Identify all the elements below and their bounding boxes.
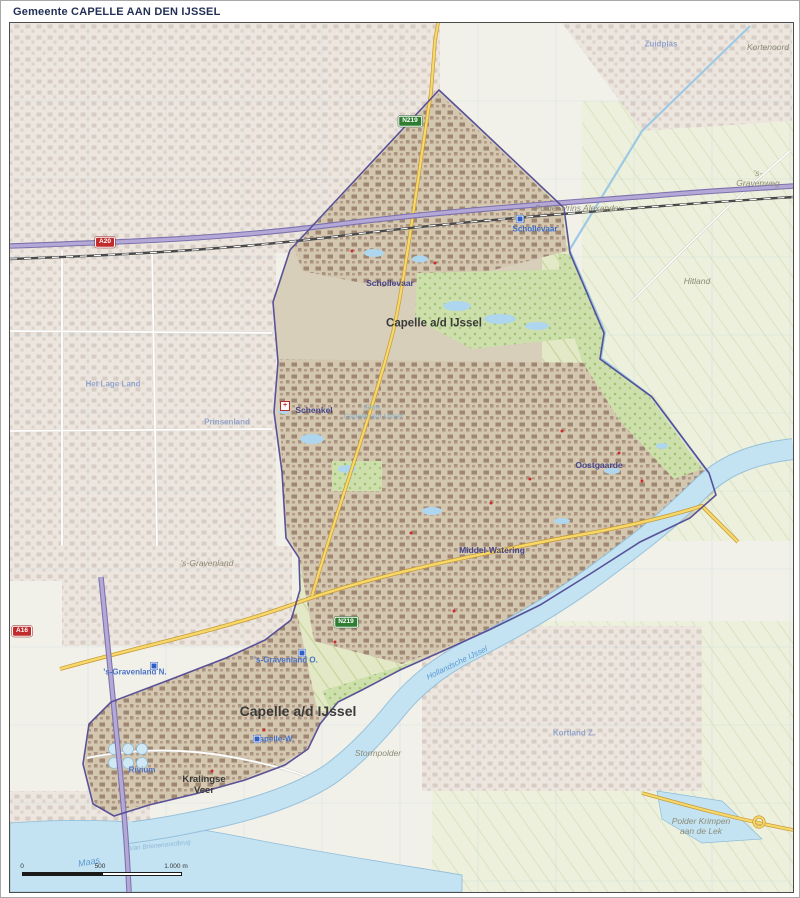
hospital-icon: + <box>280 401 290 411</box>
map-canvas <box>10 23 793 892</box>
scale-label-zero: 0 <box>20 863 24 870</box>
map-title: Gemeente CAPELLE AAN DEN IJSSEL <box>13 6 221 18</box>
scale-bar-white-segment <box>102 872 182 876</box>
scale-label-end: 1.000 m <box>164 863 188 870</box>
road-shield-n219-north: N219 <box>398 116 422 127</box>
station-icon-s-gravenland-n <box>151 663 158 670</box>
road-shield-a16: A16 <box>12 626 32 637</box>
station-icon-schollevaar <box>517 216 524 223</box>
road-shield-n219-south: N219 <box>334 617 358 628</box>
station-icon-capelle-west <box>254 736 261 743</box>
station-icon-s-gravenland-o <box>299 650 306 657</box>
scale-label-mid: 500 <box>95 863 106 870</box>
map-sheet: Gemeente CAPELLE AAN DEN IJSSEL <box>0 0 800 898</box>
map-frame: Capelle a/d IJssel Capelle a/d IJssel Sc… <box>9 22 794 893</box>
road-shield-a20: A20 <box>95 237 115 248</box>
scale-bar-black-segment <box>22 872 102 876</box>
